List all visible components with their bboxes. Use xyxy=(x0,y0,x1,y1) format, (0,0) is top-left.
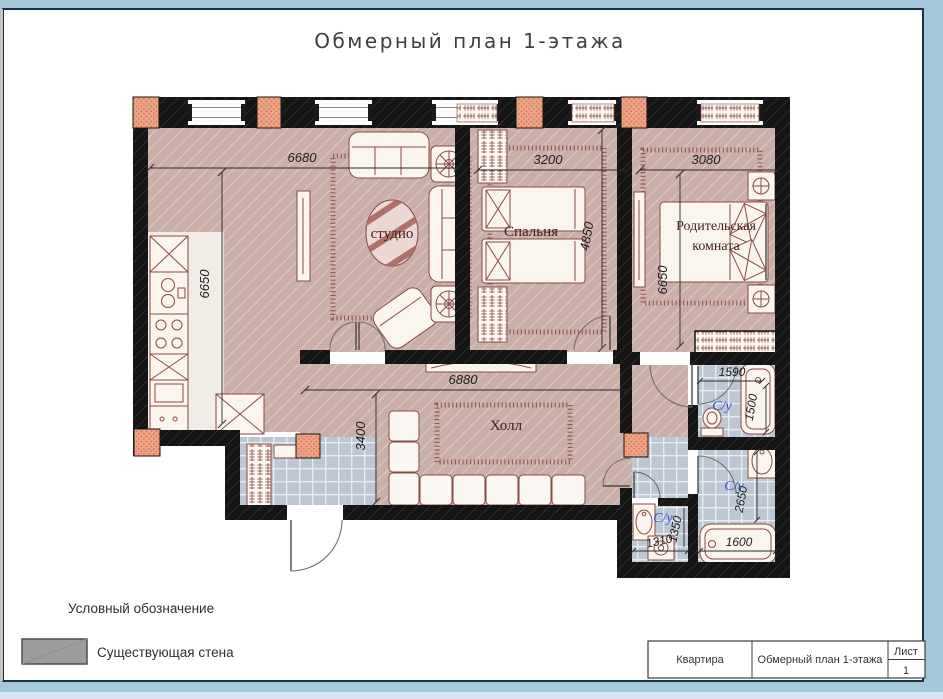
kitchen-stove xyxy=(150,314,188,354)
label-hall: Холл xyxy=(490,418,523,434)
legend-heading: Условный обозначение xyxy=(68,601,214,616)
dim-bath-main-tub: 1600 xyxy=(726,535,753,549)
dim-hall-height: 3400 xyxy=(353,421,368,451)
bed-single xyxy=(482,239,585,283)
label-bedroom: Спальня xyxy=(504,224,558,240)
label-parents-2: комната xyxy=(692,239,740,254)
nightstand xyxy=(748,172,775,200)
tv-unit xyxy=(297,191,310,281)
window xyxy=(568,100,616,125)
wardrobe xyxy=(478,287,507,342)
dim-bedroom-width: 3200 xyxy=(534,152,564,167)
window xyxy=(432,100,498,125)
column xyxy=(621,97,647,128)
titleblock-object: Квартира xyxy=(676,654,724,666)
titleblock-sheet-label: Лист xyxy=(894,646,918,658)
column xyxy=(624,433,648,457)
dim-studio-width: 6680 xyxy=(288,150,318,165)
dim-parents-height: 6650 xyxy=(655,265,670,295)
column xyxy=(516,97,543,128)
page: Обмерный план 1-этажа xyxy=(0,0,943,699)
title-block: Квартира Обмерный план 1-этажа Лист 1 xyxy=(648,641,925,678)
label-bath-small: С/у xyxy=(653,511,673,526)
column xyxy=(134,429,160,456)
dim-parents-width: 3080 xyxy=(692,152,722,167)
label-bath-main: С/у xyxy=(724,479,744,494)
kitchen-fridge xyxy=(150,406,188,432)
column xyxy=(257,97,281,128)
column xyxy=(133,97,159,128)
drawing-title: Обмерный план 1-этажа xyxy=(314,29,626,53)
radiator xyxy=(247,444,271,512)
radiator xyxy=(572,104,614,122)
legend-wall-swatch xyxy=(22,639,87,664)
dim-hall-width: 6880 xyxy=(449,372,479,387)
floorplan-drawing: Обмерный план 1-этажа xyxy=(0,0,943,699)
radiator xyxy=(695,331,776,353)
window xyxy=(188,100,245,125)
titleblock-sheet-number: 1 xyxy=(903,665,909,677)
nightstand xyxy=(748,285,775,313)
window xyxy=(697,100,763,125)
radiator xyxy=(701,104,759,122)
radiator xyxy=(457,104,497,122)
label-parents-1: Родительская xyxy=(676,219,756,234)
titleblock-drawing: Обмерный план 1-этажа xyxy=(758,654,884,666)
column xyxy=(296,434,320,458)
corridor-floor xyxy=(632,365,688,437)
label-studio: студио xyxy=(371,226,414,242)
legend-wall-label: Существующая стена xyxy=(97,645,234,660)
wardrobe xyxy=(478,130,507,183)
dim-bath-top-width: 1590 xyxy=(719,365,746,379)
dim-studio-height: 6650 xyxy=(197,269,212,299)
shelf xyxy=(274,445,298,458)
sofa xyxy=(349,132,429,178)
window xyxy=(315,100,372,125)
label-bath-top: С/у xyxy=(712,399,732,414)
tv-unit xyxy=(634,192,645,287)
